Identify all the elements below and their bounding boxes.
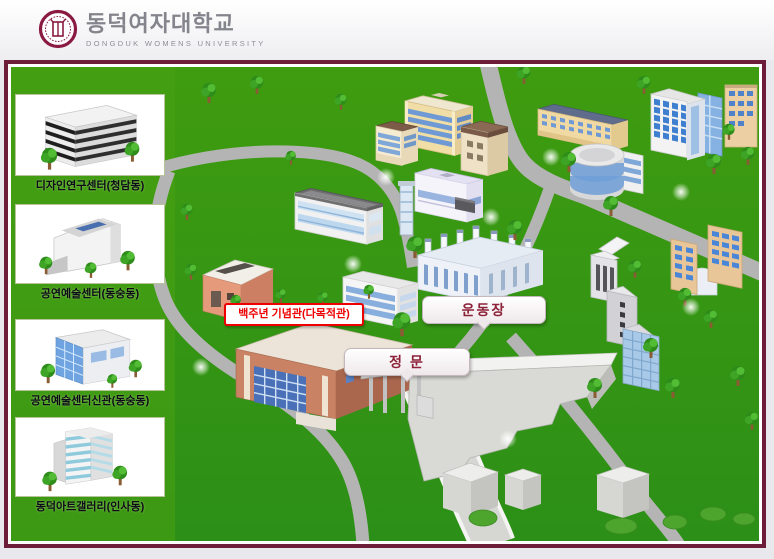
campus-map-page: 동덕여자대학교 DONGDUK WOMENS UNIVERSITY	[0, 0, 774, 559]
sidebar-item-performing-arts-center-annex[interactable]: 공연예술센터신관(동숭동)	[15, 319, 165, 409]
building-blue-grid	[651, 89, 705, 161]
performing-arts-center-annex-thumb	[15, 319, 165, 391]
sidebar-item-label: 디자인연구센터(청담동)	[15, 178, 165, 194]
university-title: 동덕여자대학교	[86, 12, 266, 36]
performing-arts-center-thumb	[15, 204, 165, 284]
marker-playground[interactable]: 운동장	[422, 296, 546, 324]
university-seal-icon	[38, 9, 78, 49]
sidebar-item-label: 공연예술센터(동숭동)	[15, 286, 165, 302]
sidebar-item-dongduk-art-gallery[interactable]: 동덕아트갤러리(인사동)	[15, 417, 165, 515]
map-frame: 디자인연구센터(청담동) 공연예술센터(동숭동)	[4, 60, 766, 548]
site-header: 동덕여자대학교 DONGDUK WOMENS UNIVERSITY	[0, 0, 774, 60]
campus-map: 디자인연구센터(청담동) 공연예술센터(동숭동)	[11, 67, 759, 541]
building-small-annex	[376, 121, 418, 165]
building-angled-tower	[461, 121, 508, 175]
sidebar-item-label: 공연예술센터신관(동숭동)	[15, 393, 165, 409]
design-research-center-thumb	[15, 94, 165, 176]
marker-centennial-label: 백주년 기념관(다목적관)	[238, 308, 350, 320]
sidebar-item-performing-arts-center[interactable]: 공연예술센터(동숭동)	[15, 204, 165, 302]
marker-centennial-hall[interactable]: 백주년 기념관(다목적관)	[224, 303, 364, 326]
building-elevator-tower	[398, 181, 415, 235]
sidebar-item-label: 동덕아트갤러리(인사동)	[15, 499, 165, 515]
dongduk-art-gallery-thumb	[15, 417, 165, 497]
sidebar-item-design-research-center[interactable]: 디자인연구센터(청담동)	[15, 94, 165, 194]
building-glass-tower-corner	[698, 85, 757, 156]
university-subtitle: DONGDUK WOMENS UNIVERSITY	[86, 39, 266, 48]
marker-main-gate[interactable]: 정 문	[344, 348, 470, 376]
